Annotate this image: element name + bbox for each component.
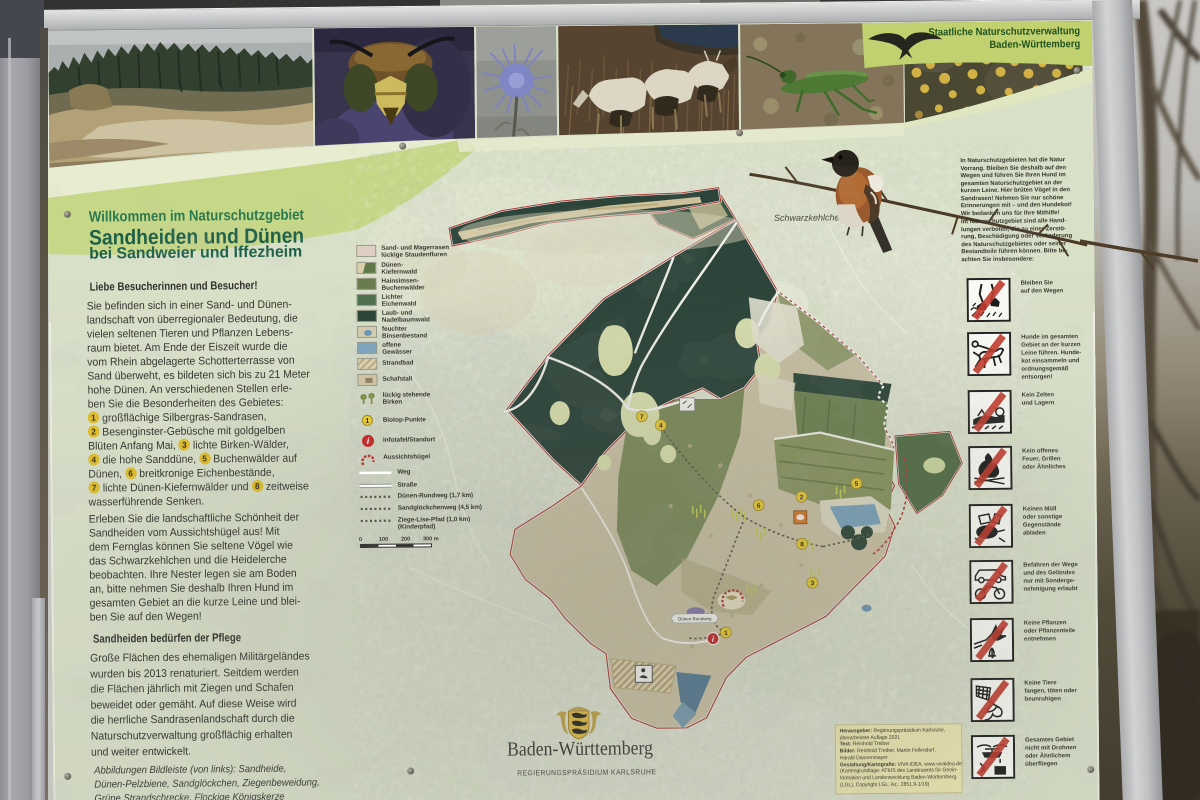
svg-text:3: 3 xyxy=(811,580,815,587)
svg-text:6: 6 xyxy=(757,503,761,510)
svg-text:7: 7 xyxy=(640,414,644,421)
svg-text:8: 8 xyxy=(800,541,804,548)
svg-text:1: 1 xyxy=(724,630,728,637)
svg-text:4: 4 xyxy=(659,423,663,430)
svg-text:Dünen Rundweg: Dünen Rundweg xyxy=(678,616,712,621)
svg-text:2: 2 xyxy=(800,494,804,501)
svg-text:5: 5 xyxy=(855,481,859,488)
